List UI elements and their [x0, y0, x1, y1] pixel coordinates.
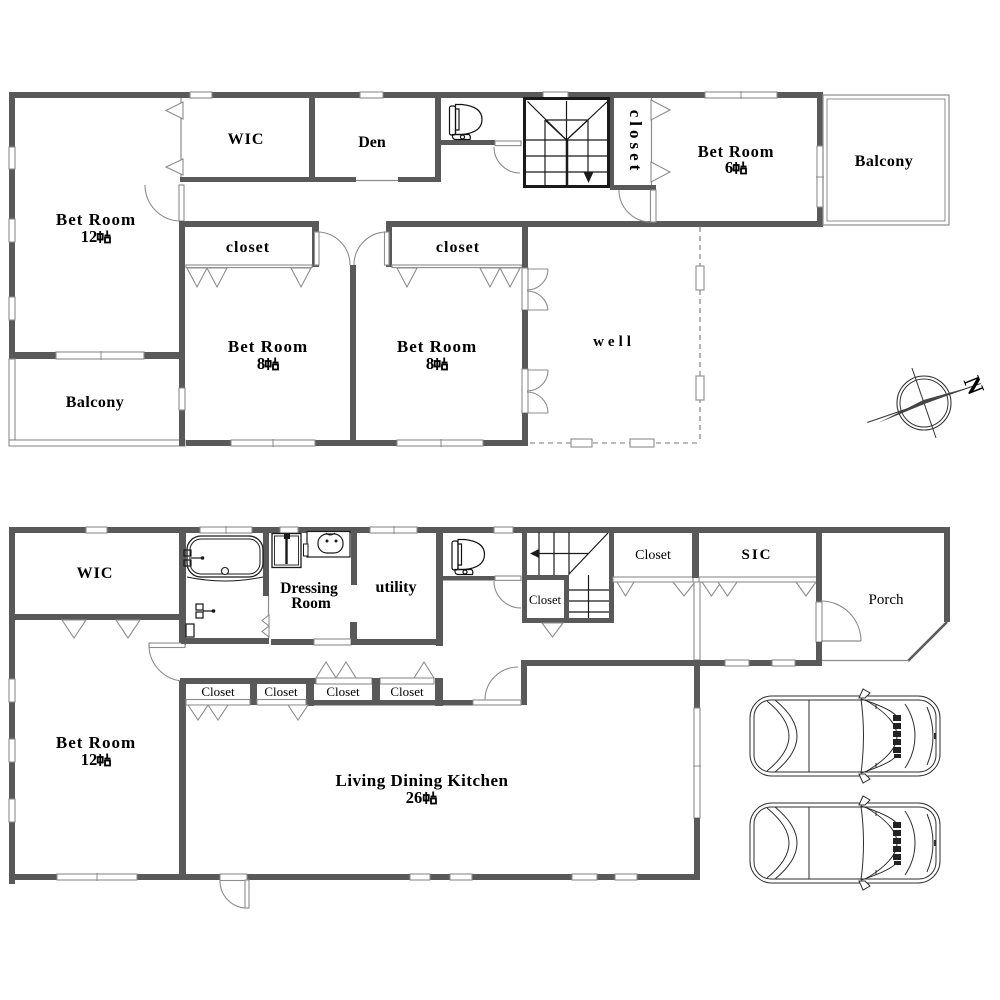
svg-text:closet: closet — [626, 110, 645, 175]
svg-text:Closet: Closet — [390, 684, 424, 699]
svg-text:Closet: Closet — [529, 593, 561, 607]
svg-text:Bet Room: Bet Room — [698, 142, 775, 161]
svg-text:6: 6 — [725, 158, 733, 177]
svg-text:Bet Room: Bet Room — [228, 337, 308, 356]
svg-text:Balcony: Balcony — [855, 153, 914, 170]
svg-text:closet: closet — [226, 239, 270, 256]
svg-text:SIC: SIC — [741, 547, 772, 563]
svg-text:WIC: WIC — [228, 131, 265, 148]
svg-text:Balcony: Balcony — [66, 394, 125, 411]
svg-text:Room: Room — [291, 595, 331, 612]
svg-text:Closet: Closet — [326, 684, 360, 699]
svg-text:Porch: Porch — [869, 592, 904, 608]
svg-text:utility: utility — [376, 579, 417, 596]
svg-text:Closet: Closet — [201, 684, 235, 699]
svg-text:8: 8 — [426, 354, 434, 373]
svg-text:Closet: Closet — [264, 684, 298, 699]
svg-text:8: 8 — [257, 354, 265, 373]
svg-text:Bet Room: Bet Room — [397, 337, 477, 356]
svg-text:well: well — [593, 334, 635, 350]
svg-text:WIC: WIC — [77, 565, 114, 582]
svg-text:12: 12 — [81, 227, 98, 246]
svg-text:closet: closet — [436, 239, 480, 256]
svg-text:12: 12 — [81, 750, 98, 769]
svg-text:26: 26 — [406, 788, 423, 807]
svg-text:Den: Den — [358, 134, 386, 151]
svg-text:Closet: Closet — [635, 548, 671, 563]
